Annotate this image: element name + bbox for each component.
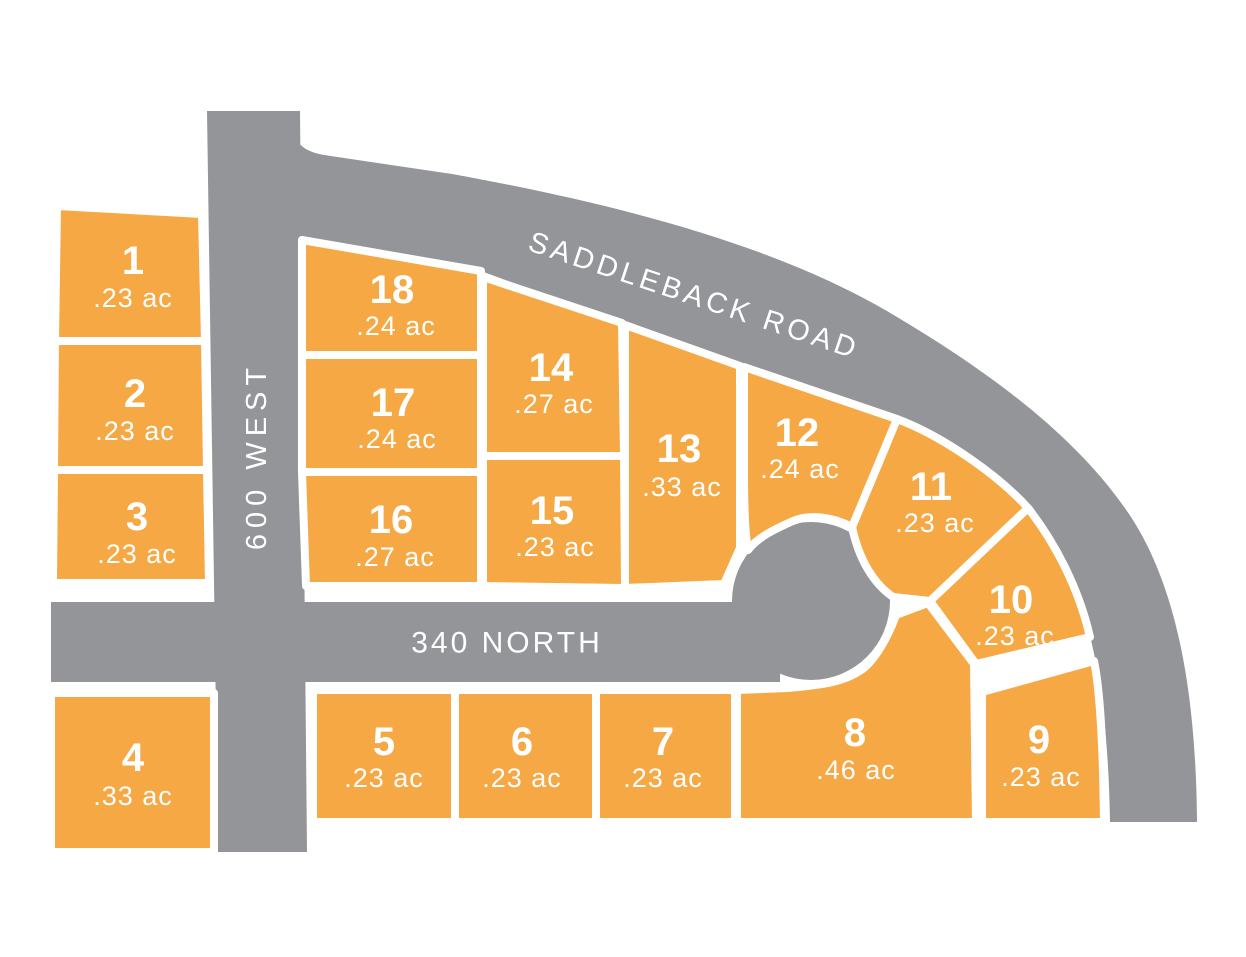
- lot-9-area: .23 ac: [1001, 762, 1081, 792]
- lot-13: 13 .33 ac: [625, 325, 740, 588]
- lot-7-area: .23 ac: [623, 763, 703, 793]
- lot-1-area: .23 ac: [93, 283, 173, 313]
- lot-10-area: .23 ac: [975, 621, 1055, 651]
- lot-3: 3 .23 ac: [53, 470, 209, 583]
- lot-8-area: .46 ac: [816, 755, 896, 785]
- lot-7: 7 .23 ac: [596, 690, 735, 822]
- lot-10-number: 10: [989, 578, 1034, 622]
- lot-17: 17 .24 ac: [302, 355, 481, 472]
- lot-17-area: .24 ac: [357, 424, 437, 454]
- lot-4-number: 4: [122, 736, 145, 780]
- lot-2-area: .23 ac: [95, 416, 175, 446]
- lot-8-number: 8: [844, 711, 866, 755]
- lot-13-number: 13: [657, 427, 702, 471]
- lot-14-number: 14: [529, 346, 574, 390]
- lot-16: 16 .27 ac: [302, 472, 481, 586]
- lot-6: 6 .23 ac: [455, 690, 596, 822]
- lot-2: 2 .23 ac: [54, 341, 207, 470]
- lot-12-area: .24 ac: [760, 454, 840, 484]
- lot-7-number: 7: [652, 720, 674, 764]
- plat-map-page: 1 .23 ac 2 .23 ac 3 .23 ac 4 .33 ac 5 .2…: [0, 0, 1246, 957]
- lot-5: 5 .23 ac: [313, 690, 455, 822]
- lot-14-area: .27 ac: [514, 389, 594, 419]
- lot-18-area: .24 ac: [356, 311, 436, 341]
- lot-5-number: 5: [373, 720, 395, 764]
- lot-1: 1 .23 ac: [55, 206, 205, 341]
- road-label-340-north: 340 NORTH: [411, 627, 603, 660]
- lot-16-number: 16: [369, 498, 414, 542]
- lot-3-area: .23 ac: [97, 539, 177, 569]
- lot-9-number: 9: [1028, 718, 1050, 762]
- lot-18-number: 18: [370, 268, 415, 312]
- lot-3-number: 3: [126, 495, 148, 539]
- lot-5-area: .23 ac: [344, 763, 424, 793]
- lot-17-number: 17: [371, 381, 416, 425]
- lot-1-number: 1: [122, 239, 144, 283]
- lot-16-area: .27 ac: [355, 542, 435, 572]
- lot-11-area: .23 ac: [895, 508, 975, 538]
- lot-6-number: 6: [511, 720, 533, 764]
- lot-15: 15 .23 ac: [483, 456, 625, 588]
- lot-4: 4 .33 ac: [51, 693, 214, 852]
- lot-13-area: .33 ac: [642, 472, 722, 502]
- road-label-600-west: 600 WEST: [241, 362, 273, 550]
- lot-11-number: 11: [910, 465, 952, 509]
- lot-6-area: .23 ac: [482, 763, 562, 793]
- lot-9: 9 .23 ac: [982, 661, 1104, 822]
- plat-map: 1 .23 ac 2 .23 ac 3 .23 ac 4 .33 ac 5 .2…: [0, 0, 1246, 957]
- lot-4-area: .33 ac: [93, 781, 173, 811]
- lot-2-number: 2: [124, 372, 146, 416]
- lot-15-area: .23 ac: [515, 532, 595, 562]
- lot-15-number: 15: [530, 489, 575, 533]
- lot-12-number: 12: [775, 411, 820, 455]
